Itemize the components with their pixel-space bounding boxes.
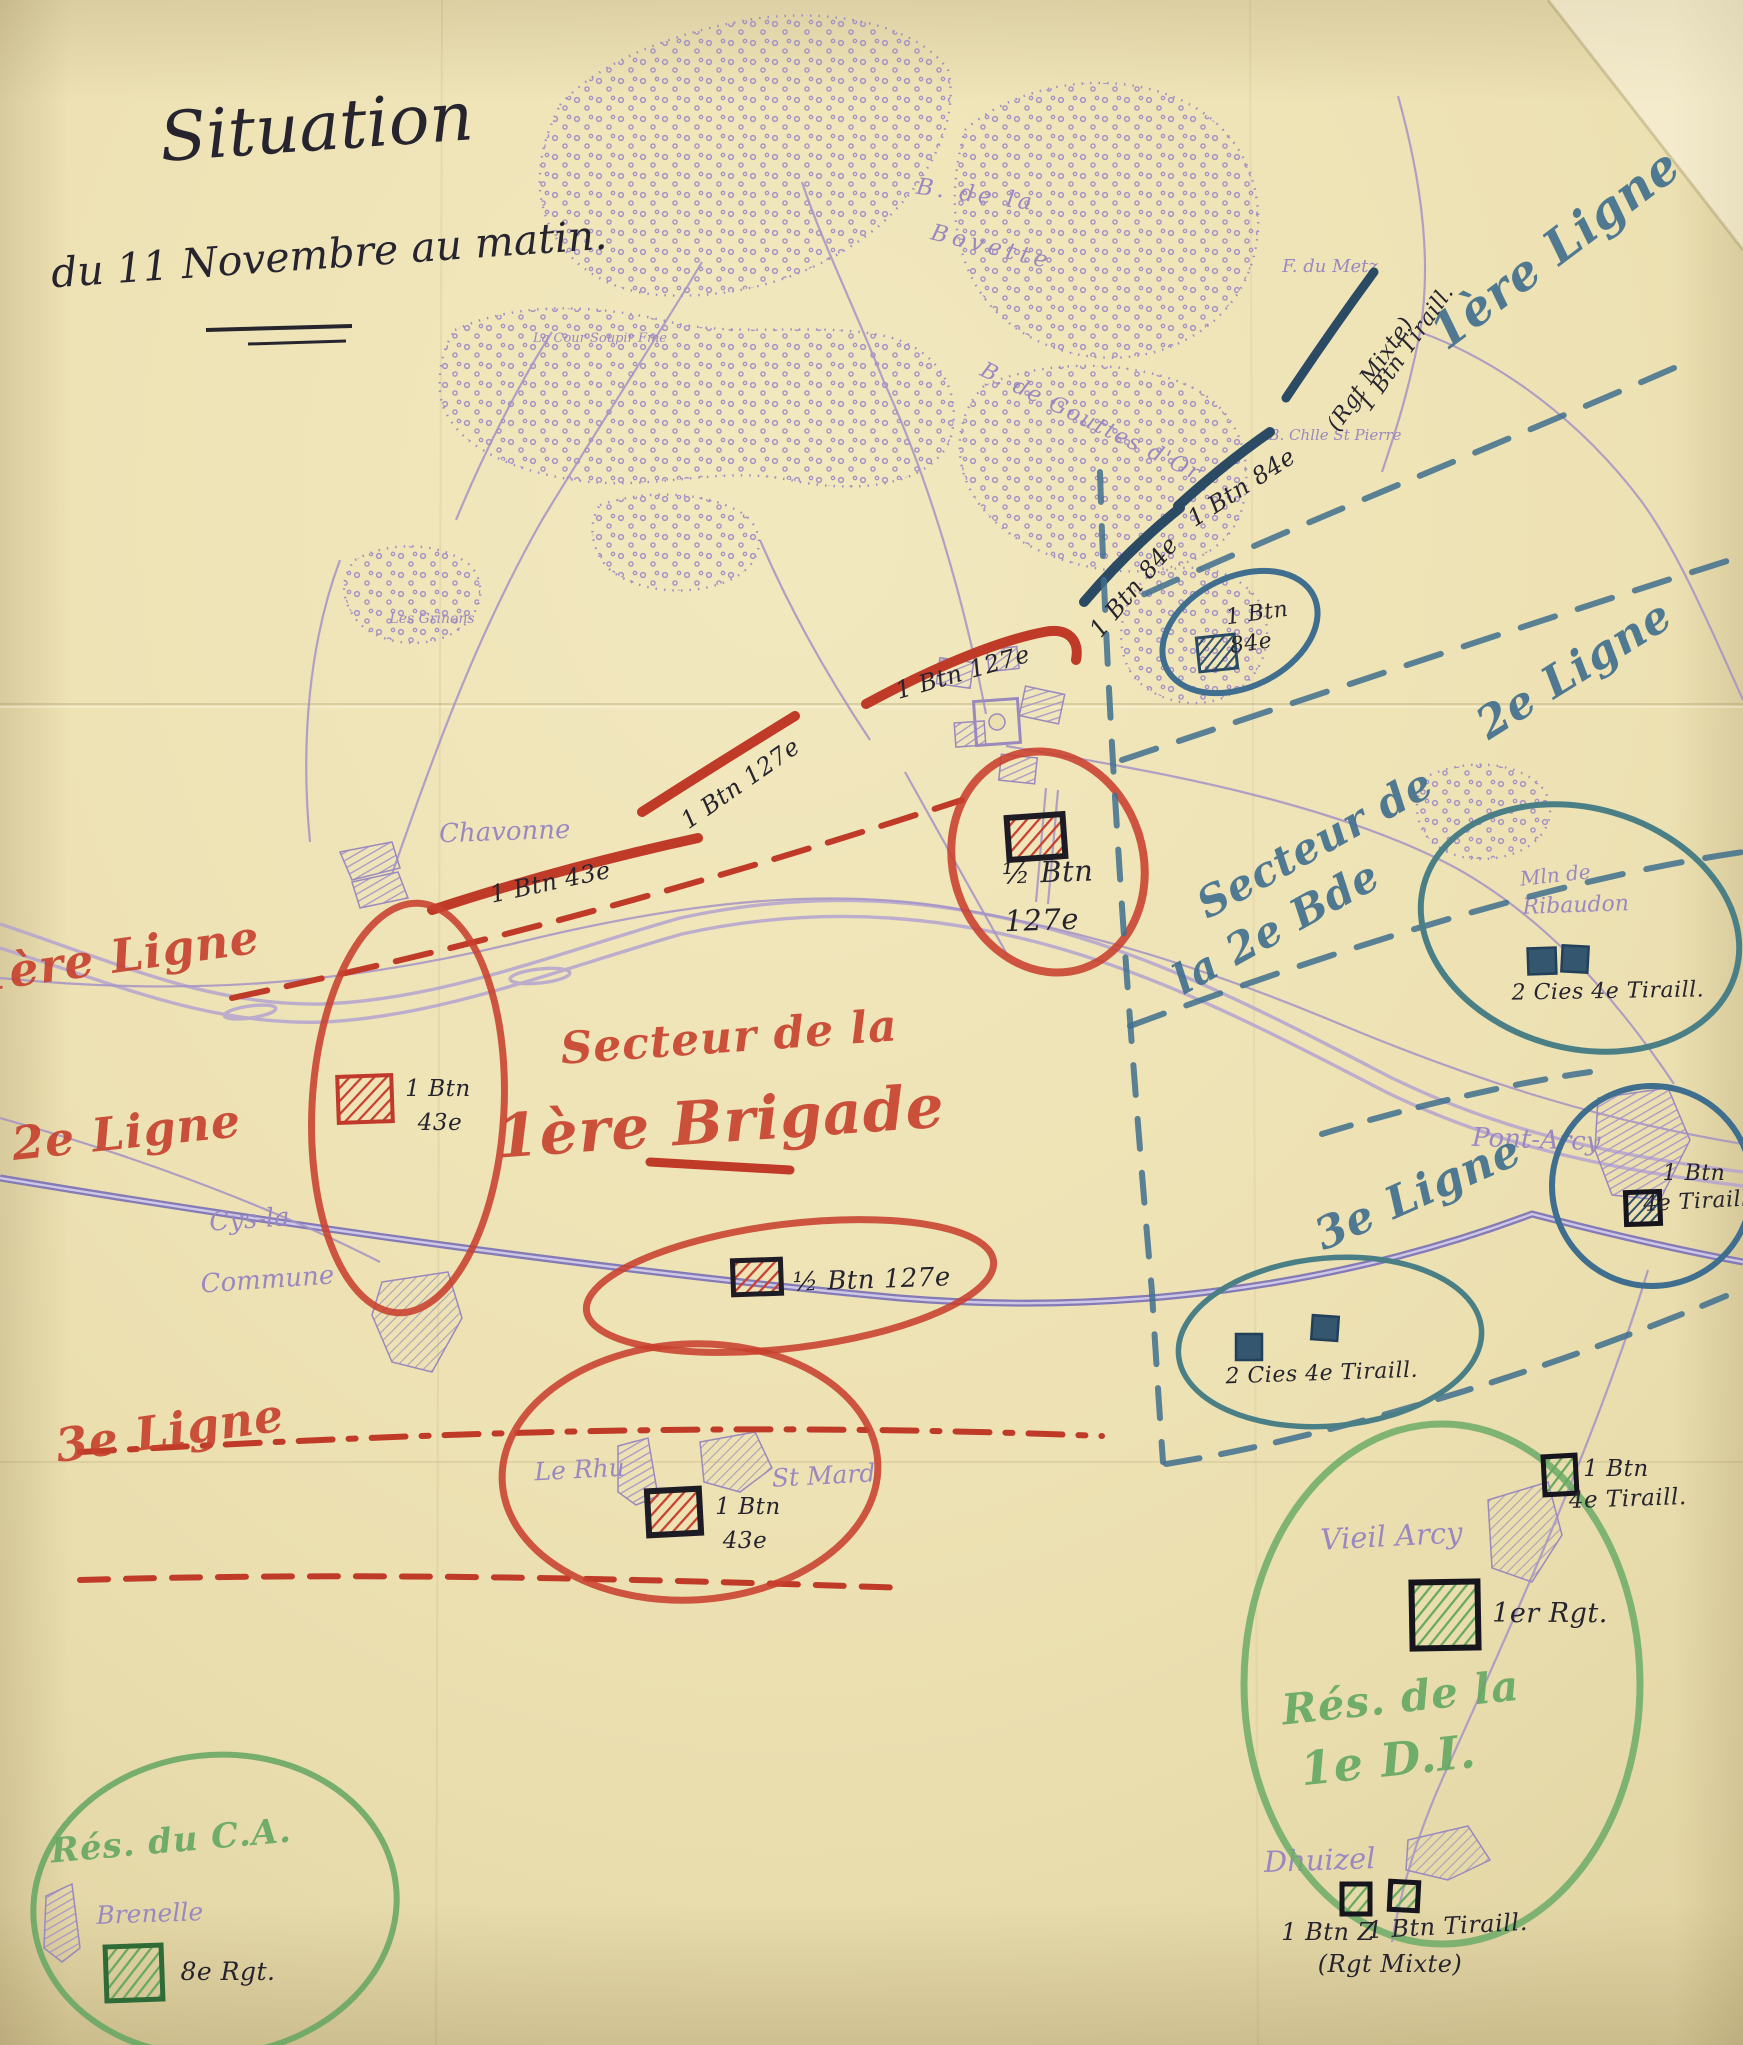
navy-square-ribaudon-2: [1561, 945, 1588, 972]
place-dhuizel: Dhuizel: [1262, 1841, 1376, 1879]
unit-half127-rail: ½ Btn 127e: [792, 1262, 951, 1297]
unit-btn-pontarcy-line2: 4e Tiraill.: [1642, 1186, 1743, 1217]
soupir-chateau-court: [989, 714, 1005, 730]
unit-btn-z: 1 Btn Z: [1281, 1918, 1375, 1946]
red-unit-square-btn43: [337, 1075, 393, 1123]
unit-half127-line2: 127e: [1004, 902, 1080, 939]
unit-btn43-oval-line1: 1 Btn: [405, 1076, 470, 1102]
unit-btn-tiraill-green-2: 4e Tiraill.: [1567, 1484, 1687, 1514]
unit-btn-pontarcy-line1: 1 Btn: [1663, 1161, 1726, 1186]
green-square-rgt1: [1411, 1581, 1478, 1648]
green-square-dhuizel-2: [1389, 1881, 1418, 1910]
place-le-rhu: Le Rhu: [533, 1453, 626, 1487]
navy-square-south-2: [1311, 1315, 1339, 1341]
place-cys-1: Cys-la: [208, 1202, 290, 1238]
unit-btn-tiraill-green-1: 1 Btn: [1583, 1456, 1648, 1482]
situation-map: Chavonne La Cour Soupir Fme Les Grinons …: [0, 0, 1743, 2045]
green-square-rgt8: [105, 1945, 163, 2001]
place-grinons: Les Grinons: [388, 611, 474, 627]
unit-cies-ribaudon: 2 Cies 4e Tiraill.: [1510, 977, 1704, 1005]
red-unit-square-lerhu: [647, 1489, 701, 1536]
unit-half127-line1: ½ Btn: [1001, 853, 1094, 890]
soupir-block-4: [954, 721, 986, 747]
unit-btn43-rhu-line1: 1 Btn: [715, 1494, 780, 1520]
navy-square-ribaudon-1: [1528, 948, 1557, 975]
unit-rgt1: 1er Rgt.: [1492, 1598, 1608, 1629]
place-cour-soupir: La Cour Soupir Fme: [532, 331, 667, 346]
place-f-du-metz: F. du Metz: [1281, 256, 1378, 277]
unit-rgt8: 8e Rgt.: [181, 1957, 276, 1986]
unit-btn43-oval-line2: 43e: [417, 1110, 462, 1136]
unit-btn43-rhu-line2: 43e: [722, 1528, 767, 1554]
wood-ribaudon: [1417, 765, 1550, 859]
red-unit-square-rail: [732, 1259, 781, 1295]
unit-rgt-mixte-dhuizel: (Rgt Mixte): [1318, 1950, 1463, 1978]
wood-mid: [440, 308, 954, 486]
navy-square-south-1: [1236, 1334, 1262, 1360]
red-unit-square-half127: [1007, 814, 1066, 860]
green-square-dhuizel-1: [1342, 1884, 1370, 1914]
place-brenelle: Brenelle: [95, 1897, 204, 1930]
place-chavonne: Chavonne: [439, 815, 571, 850]
place-st-mard: St Mard: [771, 1458, 876, 1492]
